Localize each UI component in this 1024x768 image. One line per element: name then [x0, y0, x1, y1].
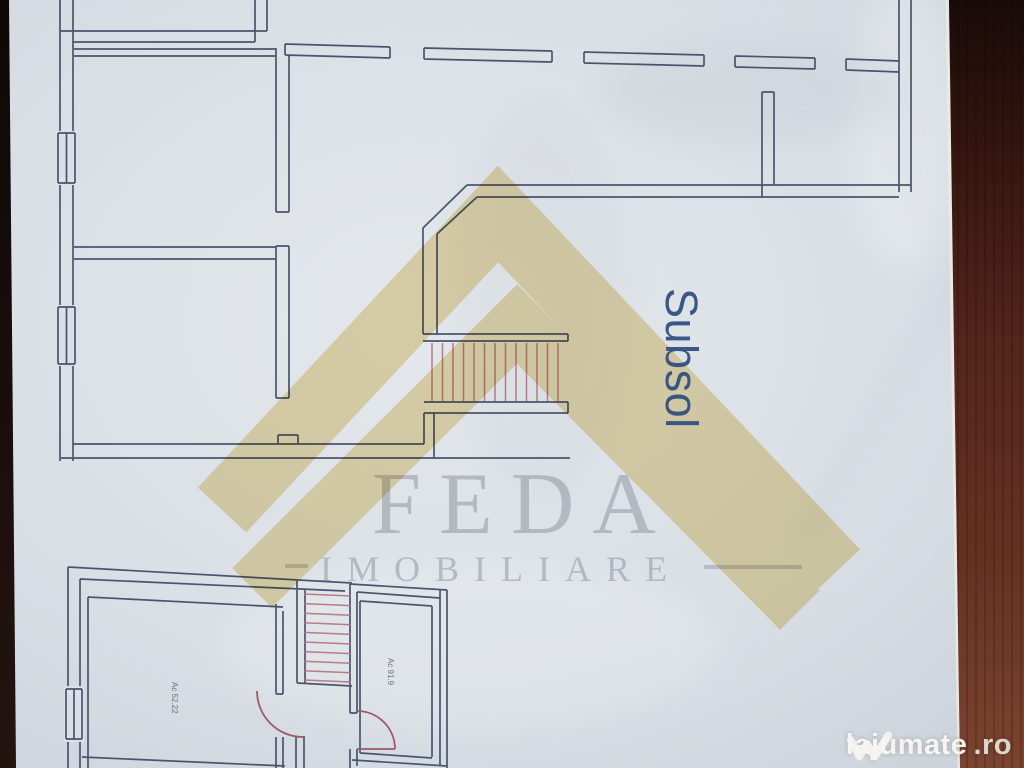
watermark-tagline: IMOBILIARE — [320, 549, 682, 589]
room-label-left: Ac 52.22 — [170, 682, 179, 714]
photo-canvas: FEDA IMOBILIARE Subsol — [0, 0, 1024, 768]
photo-border-right-grain — [949, 0, 1024, 768]
room-label-right: Ac 91.9 — [386, 658, 395, 686]
level-label-subsol: Subsol — [656, 288, 707, 429]
lajumate-tld: .ro — [973, 729, 1012, 762]
floor-plan-photo: FEDA IMOBILIARE Subsol — [0, 0, 1024, 768]
lajumate-logo-icon — [846, 729, 892, 765]
lower-plan-window — [64, 686, 84, 742]
lajumate-watermark: lajumate.ro — [846, 729, 1012, 762]
